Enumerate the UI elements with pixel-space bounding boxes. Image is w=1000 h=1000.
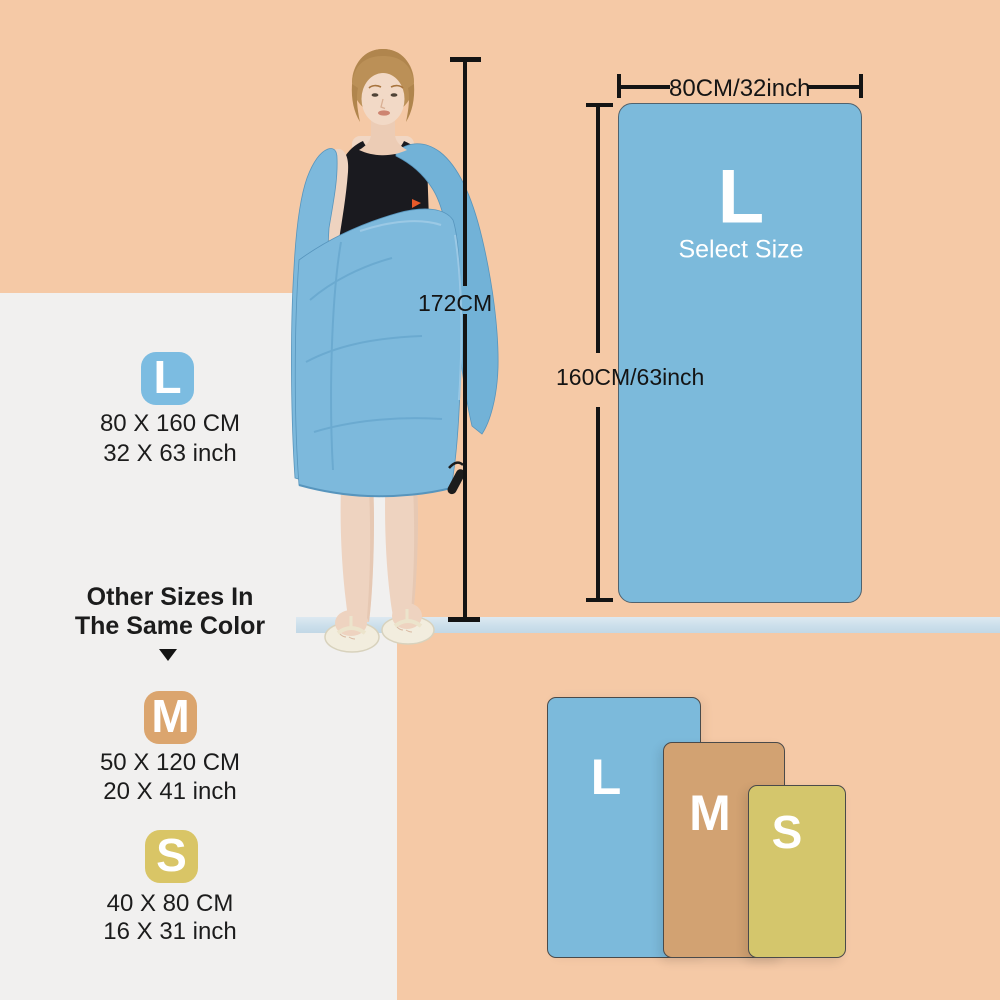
width-dim-right-cap — [859, 74, 863, 98]
diagram-select-size-label: Select Size — [678, 236, 803, 265]
size-badge-s-letter: S — [156, 832, 187, 878]
towel-size-infographic: 172CM L Select Size 80CM/32inch 160CM/63… — [0, 0, 1000, 1000]
size-l-cm-label: 80 X 160 CM — [0, 410, 340, 438]
length-dim-line-upper — [596, 107, 600, 353]
diagram-length-label: 160CM/63inch — [556, 364, 686, 390]
size-l-inch-label: 32 X 63 inch — [0, 440, 340, 468]
height-dim-bottom-cap — [448, 617, 480, 622]
other-sizes-heading-line1: Other Sizes In — [0, 583, 340, 612]
arrow-down-icon — [159, 649, 177, 661]
comparison-large-letter: L — [591, 748, 622, 806]
towel-right-drape — [396, 144, 498, 434]
comparison-small-letter: S — [772, 805, 803, 859]
length-dim-bottom-cap — [586, 598, 613, 602]
model-neck — [359, 108, 407, 155]
comparison-rect-small: S — [748, 785, 846, 958]
model-arm — [320, 149, 348, 240]
size-badge-s: S — [145, 830, 198, 883]
size-s-inch-label: 16 X 31 inch — [0, 918, 340, 946]
model-face — [362, 73, 405, 125]
towel-logo — [412, 199, 421, 208]
diagram-size-letter: L — [718, 154, 764, 241]
towel-size-diagram: L Select Size — [618, 103, 862, 603]
model-height-label: 172CM — [418, 290, 488, 316]
size-m-inch-label: 20 X 41 inch — [0, 778, 340, 806]
height-dim-line-upper — [463, 57, 467, 286]
size-m-cm-label: 50 X 120 CM — [0, 749, 340, 777]
comparison-medium-letter: M — [689, 784, 731, 842]
length-dim-line-lower — [596, 407, 600, 598]
model-face-features — [369, 86, 403, 116]
width-dim-line-left — [621, 85, 670, 89]
size-badge-m-letter: M — [151, 693, 189, 739]
diagram-width-label: 80CM/32inch — [669, 75, 807, 103]
width-dim-line-right — [807, 85, 859, 89]
size-badge-l-letter: L — [153, 354, 181, 400]
size-s-cm-label: 40 X 80 CM — [0, 890, 340, 918]
height-dim-line-lower — [463, 314, 467, 618]
size-badge-l: L — [141, 352, 194, 405]
floor-shelf-strip — [296, 617, 1000, 633]
other-sizes-heading-line2: The Same Color — [0, 612, 340, 641]
model-tank-top — [338, 141, 430, 250]
size-badge-m: M — [144, 691, 197, 744]
model-hair — [352, 49, 414, 115]
